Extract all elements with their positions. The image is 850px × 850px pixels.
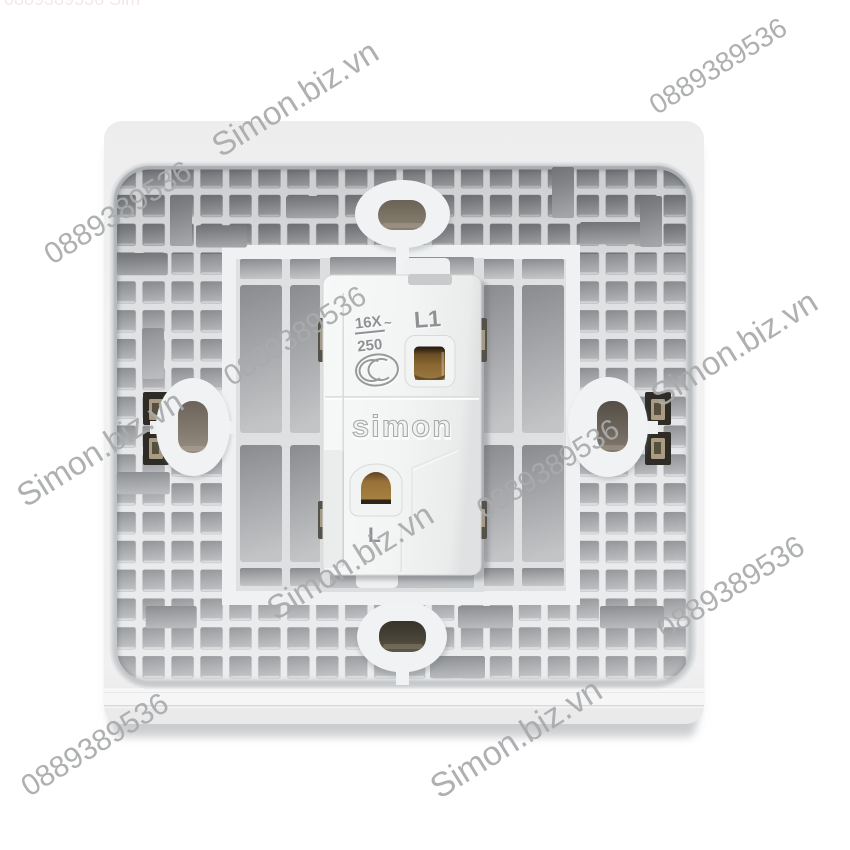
svg-text:250: 250 [357, 336, 384, 356]
svg-text:16X: 16X [354, 313, 382, 333]
svg-text:0889389536 Sim: 0889389536 Sim [4, 0, 140, 9]
svg-text:L1: L1 [413, 305, 442, 333]
svg-text:simon: simon [352, 409, 453, 444]
